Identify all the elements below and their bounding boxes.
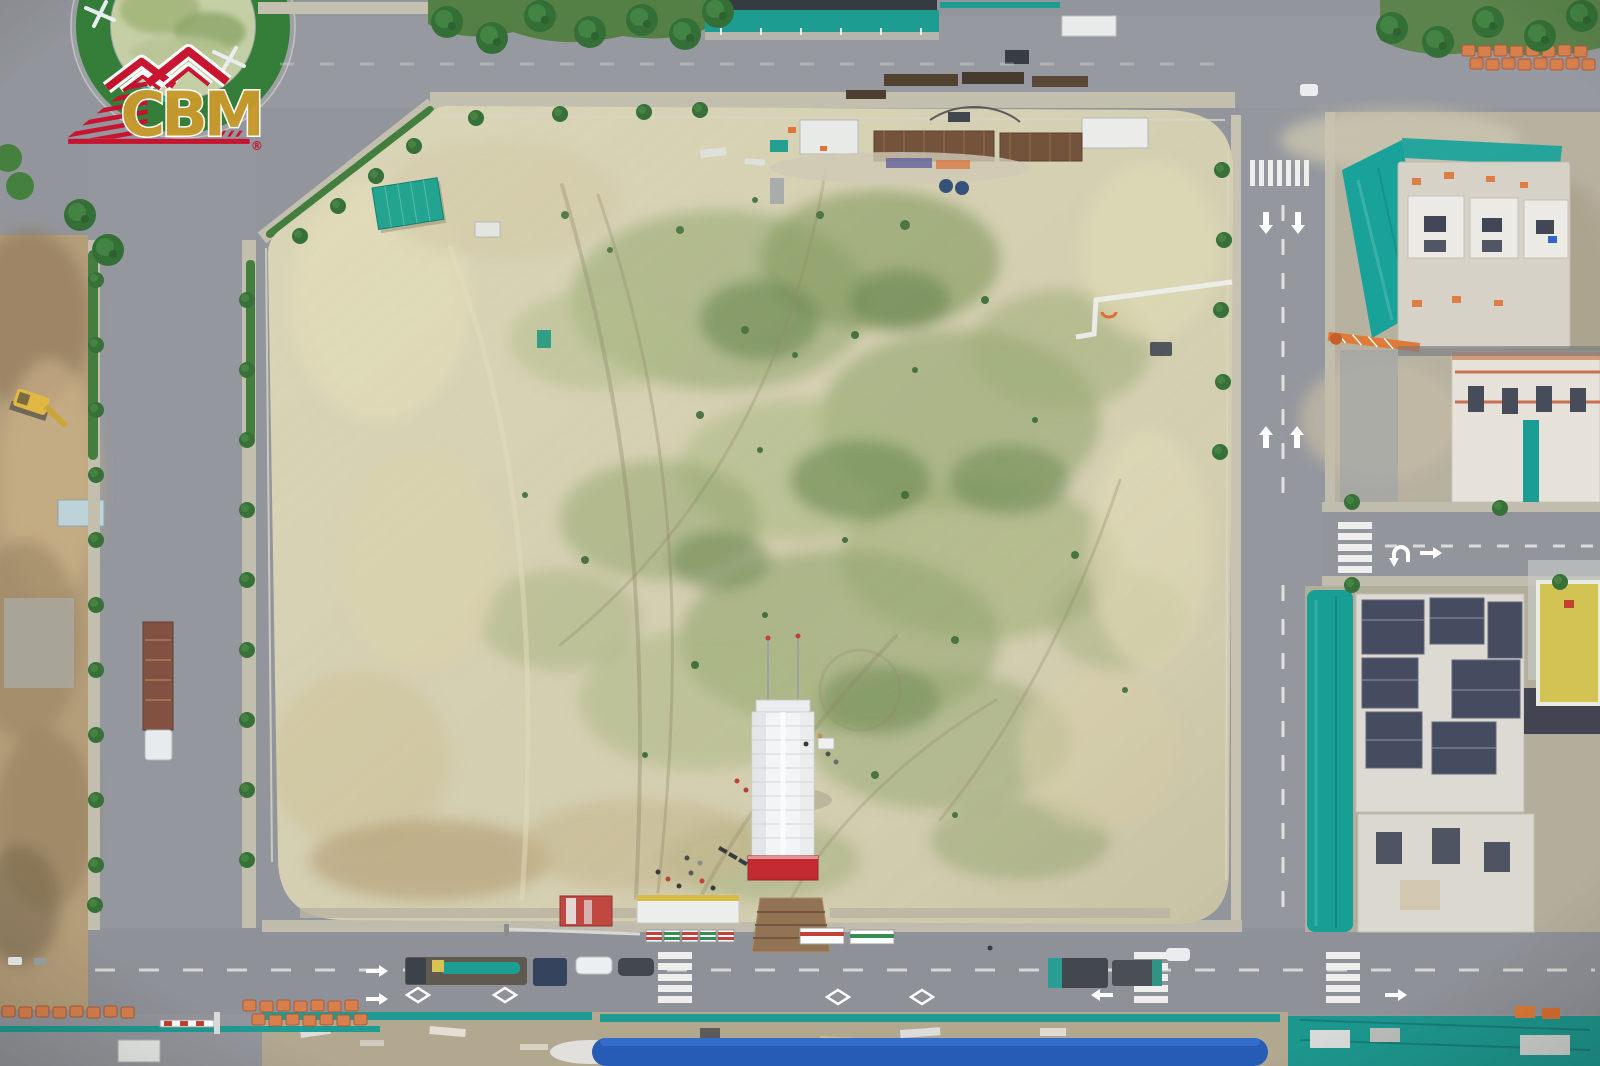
vignette (0, 0, 1600, 1066)
registered-mark: ® (251, 139, 263, 153)
cbm-logo-watermark: CBM ® (62, 42, 266, 154)
scene-svg (0, 0, 1600, 1066)
aerial-photo: CBM ® (0, 0, 1600, 1066)
logo-text: CBM (120, 80, 260, 151)
